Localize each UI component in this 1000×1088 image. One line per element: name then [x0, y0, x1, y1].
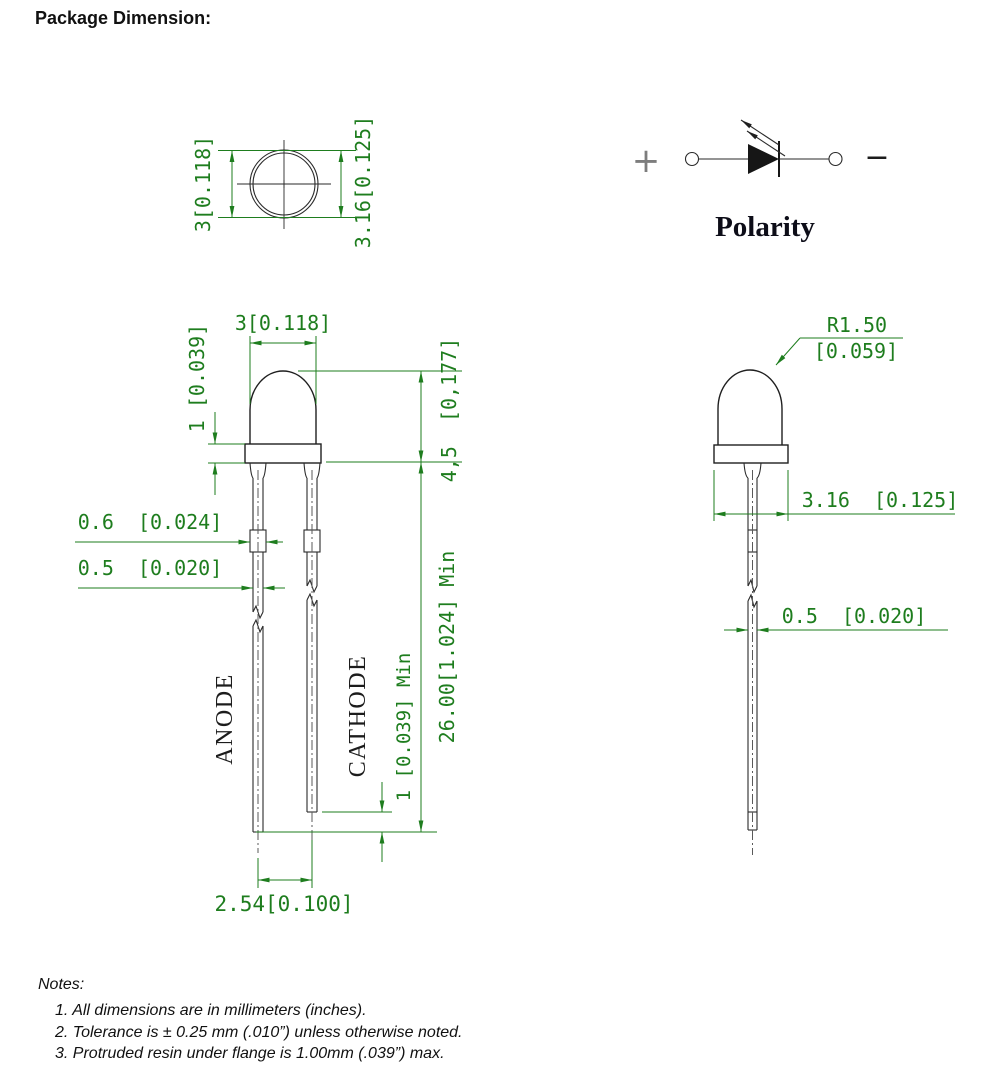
- anode-lead-shoulder: [263, 463, 266, 478]
- led-body-outline: [250, 371, 316, 444]
- note-item: 2. Tolerance is ± 0.25 mm (.010”) unless…: [55, 1022, 463, 1044]
- anode-label: ANODE: [212, 673, 238, 765]
- top-view: 3[0.118] 3.16[0.125]: [191, 116, 375, 248]
- dome-radius-label: R1.50: [827, 313, 887, 337]
- minus-sign: −: [864, 140, 889, 175]
- lead-shoulder: [757, 463, 761, 478]
- lead-width-label: 0.5 [0.020]: [782, 604, 927, 628]
- plus-sign: +: [632, 141, 661, 181]
- top-view-flange-diameter-label: 3.16[0.125]: [351, 116, 375, 248]
- led-body-outline: [718, 370, 782, 445]
- body-width-label: 3[0.118]: [235, 311, 331, 335]
- lead-width-label: 0.5 [0.020]: [78, 556, 223, 580]
- body-height-label: 4,5 [0,177]: [437, 338, 461, 483]
- datasheet-page: Package Dimension: 3[0.118] 3.16[0.125]: [0, 0, 1000, 1088]
- page-title: Package Dimension:: [35, 8, 211, 29]
- notes-section: Notes: 1. All dimensions are in millimet…: [38, 976, 463, 1065]
- led-flange: [714, 445, 788, 463]
- top-view-diameter-label: 3[0.118]: [191, 136, 215, 232]
- note-item: 1. All dimensions are in millimeters (in…: [55, 1000, 463, 1022]
- cathode-label: CATHODE: [345, 655, 371, 778]
- note-item: 3. Protruded resin under flange is 1.00m…: [55, 1043, 463, 1065]
- side-view: R1.50 [0.059] 3.16 [0.125] 0.5 [0.020]: [714, 313, 958, 855]
- polarity-caption: Polarity: [715, 211, 815, 243]
- lead-pitch-label: 2.54[0.100]: [214, 892, 353, 916]
- light-emission-arrow-icon: [741, 120, 779, 145]
- package-dimension-drawing: 3[0.118] 3.16[0.125] + − Polarity: [0, 0, 1000, 1088]
- anode-lead-shoulder: [250, 463, 253, 478]
- anode-terminal-icon: [686, 153, 699, 166]
- flange-width-label: 3.16 [0.125]: [802, 488, 959, 512]
- leader-line: [776, 338, 800, 365]
- led-flange: [245, 444, 321, 463]
- lead-length-diff-label: 1 [0.039] Min: [393, 653, 415, 802]
- lead-length-label: 26.00[1.024] Min: [435, 551, 459, 744]
- polarity-diagram: + − Polarity: [632, 120, 890, 243]
- front-view: ANODE CATHODE 3[0.118] 1 [0.039] 4,5 [0,…: [75, 311, 462, 916]
- notes-heading: Notes:: [38, 976, 463, 994]
- cathode-lead-shoulder: [317, 463, 320, 478]
- cathode-lead-shoulder: [304, 463, 307, 478]
- lead-thickness-label: 0.6 [0.024]: [78, 510, 223, 534]
- lead-shoulder: [744, 463, 748, 478]
- cathode-terminal-icon: [829, 153, 842, 166]
- dome-radius-inch-label: [0.059]: [814, 339, 898, 363]
- flange-height-label: 1 [0.039]: [185, 324, 209, 432]
